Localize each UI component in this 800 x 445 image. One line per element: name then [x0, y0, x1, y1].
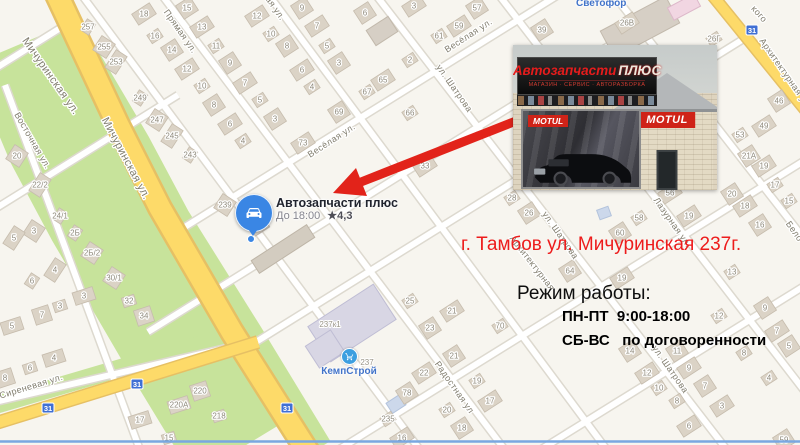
- house-number: 243: [183, 151, 197, 160]
- house-number: 249: [133, 94, 147, 103]
- house-number: 4: [767, 374, 772, 383]
- house-number: 66: [406, 109, 415, 118]
- motul-banner: MOTUL: [521, 109, 641, 189]
- house-number: 218: [212, 412, 226, 421]
- house-number: 26В: [620, 19, 634, 28]
- house-number: 10: [267, 30, 276, 39]
- storefront-photo: MOTUL АвтозапчастиПЛЮС МАГАЗИН · СЕРВИС …: [513, 45, 717, 190]
- house-number: 73: [299, 139, 308, 148]
- svg-text:31: 31: [44, 404, 52, 413]
- poi-svetofor[interactable]: Светофор: [576, 0, 626, 9]
- house-number: 18: [741, 202, 750, 211]
- house-number: 5: [12, 234, 17, 243]
- house-number: 20: [728, 190, 737, 199]
- house-number: 7: [315, 22, 320, 31]
- house-number: 9: [300, 4, 305, 13]
- house-number: 17: [486, 397, 495, 406]
- poi-kempstroy-label: КемпСтрой: [314, 366, 384, 377]
- house-number: 220А: [170, 401, 189, 410]
- house-number: 8: [742, 349, 747, 358]
- house-number: 34: [140, 312, 149, 321]
- motul-wall-sign: MOTUL: [639, 112, 695, 128]
- poi-kempstroy[interactable]: КемпСтрой: [314, 348, 384, 377]
- house-number: 25: [406, 297, 415, 306]
- house-number: 53: [736, 131, 745, 140]
- house-number: 12: [643, 369, 652, 378]
- house-number: 20: [13, 152, 22, 161]
- house-number: 5: [258, 96, 263, 105]
- house-number: 16: [756, 221, 765, 230]
- house-number: 253: [109, 58, 123, 67]
- house-number: 6: [687, 422, 692, 431]
- house-number: 10: [198, 82, 207, 91]
- shopping-cart-icon: [341, 348, 358, 365]
- house-number: 23: [426, 324, 435, 333]
- house-number: 64: [566, 267, 575, 276]
- house-number: 15: [785, 197, 794, 206]
- house-number: 6: [28, 364, 33, 373]
- house-number: 13: [198, 23, 207, 32]
- sign-title-red: Автозапчасти: [513, 63, 616, 78]
- house-number: 7: [775, 327, 780, 336]
- house-number: 69: [335, 108, 344, 117]
- house-number: 9: [228, 59, 233, 68]
- house-number: 5: [787, 342, 792, 351]
- house-number: 33: [421, 162, 430, 171]
- house-number: 22/2: [32, 181, 48, 190]
- house-number: 13: [728, 268, 737, 277]
- house-number: 6: [30, 277, 35, 286]
- store-sign-subtitle: МАГАЗИН · СЕРВИС · АВТОРАЗБОРКА: [529, 80, 646, 88]
- house-number: 8: [285, 42, 290, 51]
- pin-location-dot: [247, 235, 255, 243]
- house-number: 18: [458, 424, 467, 433]
- pin-hours: До 18:00: [276, 210, 320, 222]
- house-number: 22: [420, 369, 429, 378]
- house-number: 17: [136, 416, 145, 425]
- house-number: 3: [337, 59, 342, 68]
- house-number: 6: [228, 120, 233, 129]
- address-annotation: г. Тамбов ул. Мичуринская 237г.: [461, 234, 741, 256]
- motul-banner-logo: MOTUL: [528, 115, 568, 127]
- route-badge: 31: [281, 403, 293, 413]
- house-number: 3: [32, 227, 37, 236]
- house-number: 10: [655, 384, 664, 393]
- house-number: 7: [243, 79, 248, 88]
- house-number: 65: [379, 76, 388, 85]
- route-badge: 31: [746, 25, 758, 35]
- house-number: 17: [771, 181, 780, 190]
- brand-logos-strip: [517, 95, 657, 106]
- house-number: 9: [687, 364, 692, 373]
- house-number: 32: [125, 297, 134, 306]
- house-number: 12: [715, 312, 724, 321]
- house-number: 14: [168, 46, 177, 55]
- house-number: 28: [508, 194, 517, 203]
- house-number: 59: [780, 436, 789, 445]
- house-number: 61: [435, 32, 444, 41]
- house-number: 255: [97, 43, 111, 52]
- house-number: 21: [448, 307, 457, 316]
- house-number: 2Б: [70, 229, 80, 238]
- svg-text:31: 31: [133, 380, 141, 389]
- house-number: 67: [363, 88, 372, 97]
- house-number: 46: [775, 97, 784, 106]
- store-sign: АвтозапчастиПЛЮС МАГАЗИН · СЕРВИС · АВТО…: [517, 57, 657, 95]
- house-number: 15: [183, 4, 192, 13]
- house-number: 6: [300, 66, 305, 75]
- house-number: 2: [408, 56, 413, 65]
- svg-text:31: 31: [283, 404, 291, 413]
- pin-title: Автозапчасти плюс: [276, 196, 398, 210]
- route-badge: 31: [42, 403, 54, 413]
- house-number: 59: [455, 22, 464, 31]
- house-number: 24/1: [52, 212, 68, 221]
- house-number: 9: [763, 304, 768, 313]
- sign-title-plus: ПЛЮС: [618, 63, 661, 78]
- house-number: 19: [685, 212, 694, 221]
- house-number: 26Г: [707, 35, 721, 44]
- house-number: 26: [525, 209, 534, 218]
- house-number: 49: [760, 122, 769, 131]
- house-number: 16: [151, 32, 160, 41]
- schedule-title: Режим работы:: [517, 283, 651, 305]
- house-number: 20: [443, 406, 452, 415]
- house-number: 3: [82, 292, 87, 301]
- house-number: 70: [496, 322, 505, 331]
- car-photo-silhouette: [530, 145, 632, 186]
- pin-tail: [246, 226, 260, 236]
- house-number: 58: [635, 214, 644, 223]
- pin-rating: ★4,3: [327, 210, 352, 222]
- house-number: 4: [52, 354, 57, 363]
- house-number: 3: [412, 2, 417, 11]
- house-number: 21: [450, 352, 459, 361]
- house-number: 57: [473, 4, 482, 13]
- store-sign-title: АвтозапчастиПЛЮС: [513, 64, 661, 78]
- house-number: 7: [40, 311, 45, 320]
- house-number: 30/1: [106, 274, 122, 283]
- svg-text:31: 31: [748, 26, 756, 35]
- house-number: 19: [618, 274, 627, 283]
- house-number: 4: [53, 266, 58, 275]
- house-number: 19: [473, 377, 482, 386]
- house-number: 6: [363, 9, 368, 18]
- address-label: 237к1: [319, 320, 341, 329]
- house-number: 21А: [742, 152, 757, 161]
- house-number: 245: [165, 132, 179, 141]
- house-number: 4: [310, 83, 315, 92]
- house-number: 5: [10, 322, 15, 331]
- house-number: 8: [3, 374, 8, 383]
- house-number: 12: [183, 65, 192, 74]
- house-number: 3: [273, 115, 278, 124]
- house-number: 3: [720, 402, 725, 411]
- house-number: 12: [253, 12, 262, 21]
- house-number: 3: [58, 302, 63, 311]
- map-pin-autoparts[interactable]: [235, 194, 271, 230]
- car-icon: [244, 203, 264, 223]
- map-canvas[interactable]: 2572552532492472452432391816141210864151…: [0, 0, 800, 445]
- house-number: 78: [403, 389, 412, 398]
- house-number: 5: [325, 42, 330, 51]
- route-badge: 31: [131, 379, 143, 389]
- house-number: 247: [150, 116, 164, 125]
- photo-door: [657, 150, 678, 190]
- house-number: 39: [538, 26, 547, 35]
- house-number: 8: [212, 101, 217, 110]
- house-number: 235: [381, 415, 395, 424]
- house-number: 19: [760, 162, 769, 171]
- house-number: 11: [212, 42, 221, 51]
- schedule-weekdays: ПН-ПТ 9:00-18:00: [562, 308, 690, 325]
- schedule-weekend: СБ-ВС по договоренности: [562, 332, 766, 349]
- pin-label[interactable]: Автозапчасти плюс До 18:00★4,3: [276, 196, 398, 223]
- house-number: 257: [81, 23, 95, 32]
- house-number: 7: [703, 382, 708, 391]
- house-number: 8: [675, 397, 680, 406]
- pin-subtitle: До 18:00★4,3: [276, 210, 398, 223]
- house-number: 220: [193, 387, 207, 396]
- house-number: 18: [140, 10, 149, 19]
- house-number: 4: [241, 137, 246, 146]
- house-number: 2Б/2: [84, 249, 101, 258]
- house-number: 239: [218, 201, 232, 210]
